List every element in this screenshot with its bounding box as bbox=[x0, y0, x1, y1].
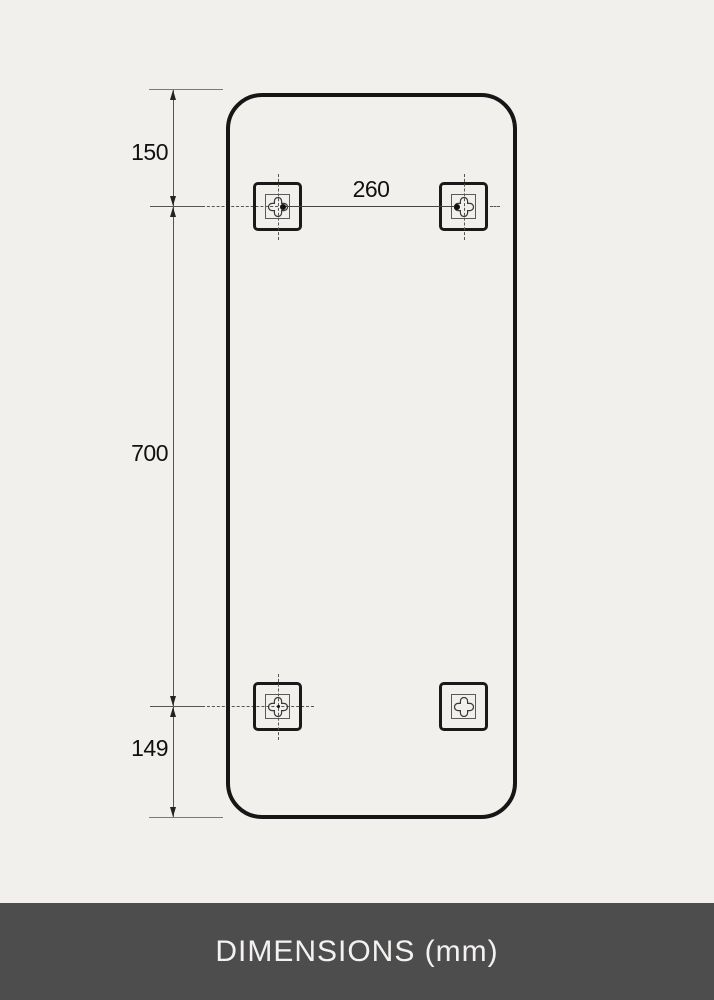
centerline-stub-bottom bbox=[150, 706, 202, 707]
screw-slot-icon bbox=[454, 697, 474, 717]
bracket-inner-plate bbox=[451, 694, 476, 719]
dimension-diagram: 150 700 149 260 DIME bbox=[0, 0, 714, 1000]
centerline-stub-top bbox=[150, 206, 202, 207]
dimension-label-horizontal-spacing: 260 bbox=[341, 177, 401, 201]
line-end-dot bbox=[454, 204, 460, 210]
bracket-centerline-vertical bbox=[464, 174, 465, 240]
dimension-label-bracket-span: 700 bbox=[106, 441, 168, 465]
bracket-center-dot bbox=[277, 705, 280, 708]
arrowhead-down-icon bbox=[170, 696, 176, 706]
arrowhead-up-icon bbox=[170, 207, 176, 217]
arrowhead-down-icon bbox=[170, 196, 176, 206]
footer-title: DIMENSIONS (mm) bbox=[215, 935, 498, 969]
line-end-dot bbox=[280, 204, 286, 210]
dimension-label-bottom-offset: 149 bbox=[106, 736, 168, 760]
bracket-spacing-line bbox=[283, 206, 459, 207]
arrowhead-down-icon bbox=[170, 807, 176, 817]
arrowhead-up-icon bbox=[170, 707, 176, 717]
extension-tick-bottom bbox=[149, 817, 223, 818]
arrowhead-up-icon bbox=[170, 90, 176, 100]
mounting-bracket-bottom-right bbox=[439, 682, 488, 731]
bracket-centerline-vertical bbox=[278, 174, 279, 240]
footer-band: DIMENSIONS (mm) bbox=[0, 903, 714, 1000]
dimension-label-top-offset: 150 bbox=[106, 140, 168, 164]
extension-tick-top bbox=[149, 89, 223, 90]
